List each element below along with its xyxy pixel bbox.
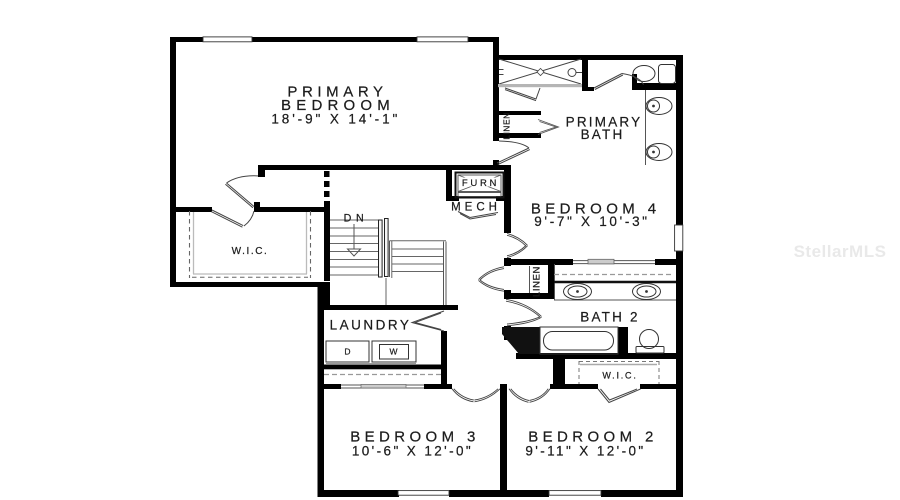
svg-text:StellarMLS: StellarMLS — [794, 242, 887, 261]
svg-text:D: D — [344, 347, 350, 357]
svg-text:FURN: FURN — [462, 178, 499, 189]
svg-text:10'-6" X 12'-0": 10'-6" X 12'-0" — [352, 444, 473, 459]
svg-text:DN: DN — [344, 213, 369, 225]
svg-text:18'-9" X 14'-1": 18'-9" X 14'-1" — [271, 112, 400, 127]
svg-text:LAUNDRY: LAUNDRY — [330, 318, 412, 333]
svg-text:9'-11" X 12'-0": 9'-11" X 12'-0" — [525, 444, 645, 459]
svg-text:W.I.C.: W.I.C. — [602, 371, 637, 381]
svg-text:BATH: BATH — [581, 127, 625, 142]
svg-text:LINEN: LINEN — [532, 266, 543, 297]
svg-text:W.I.C.: W.I.C. — [232, 246, 269, 257]
svg-text:W: W — [389, 347, 397, 357]
svg-text:BATH 2: BATH 2 — [580, 310, 639, 325]
svg-text:9'-7" X 10'-3": 9'-7" X 10'-3" — [534, 214, 650, 229]
svg-text:LINEN: LINEN — [502, 112, 512, 140]
